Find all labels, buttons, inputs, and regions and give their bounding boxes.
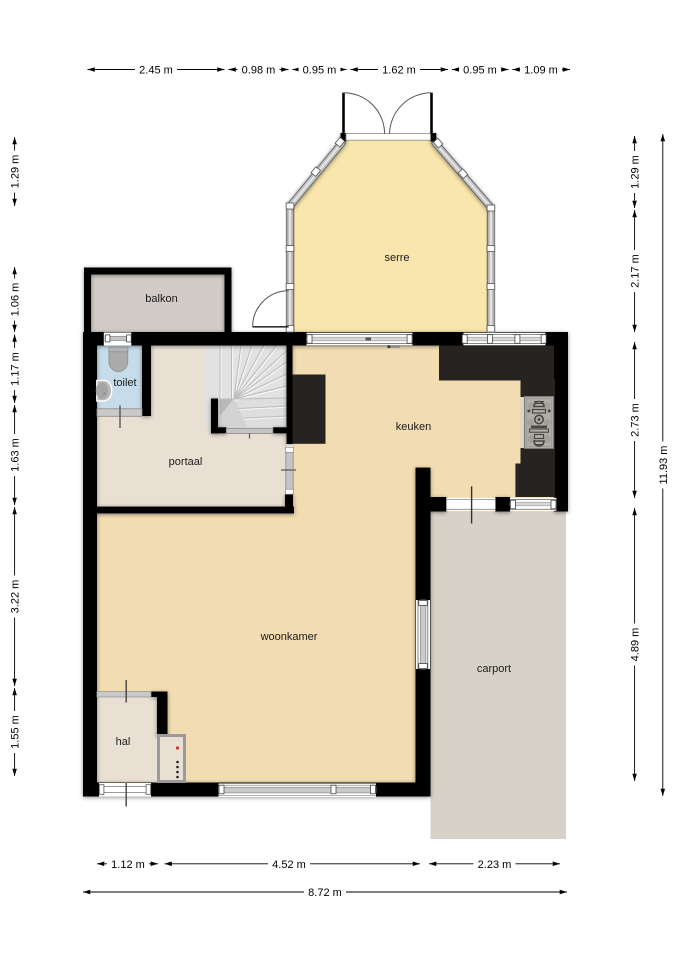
svg-text:11.93 m: 11.93 m (658, 446, 670, 485)
svg-text:hal: hal (116, 736, 131, 748)
svg-text:1.09 m: 1.09 m (524, 65, 558, 77)
svg-text:1.06 m: 1.06 m (10, 283, 22, 317)
svg-text:1.17 m: 1.17 m (10, 352, 22, 386)
svg-text:keuken: keuken (396, 421, 431, 433)
svg-text:toilet: toilet (113, 377, 136, 389)
svg-text:1.55 m: 1.55 m (10, 715, 22, 749)
svg-text:portaal: portaal (169, 456, 203, 468)
svg-text:3.22 m: 3.22 m (10, 580, 22, 614)
svg-text:0.98 m: 0.98 m (242, 65, 276, 77)
svg-text:1.12 m: 1.12 m (111, 859, 145, 871)
svg-text:4.52 m: 4.52 m (272, 859, 306, 871)
svg-text:2.45 m: 2.45 m (139, 65, 173, 77)
svg-text:serre: serre (384, 252, 409, 264)
svg-text:1.29 m: 1.29 m (630, 155, 642, 189)
svg-text:1.63 m: 1.63 m (10, 438, 22, 472)
svg-text:8.72 m: 8.72 m (308, 887, 342, 899)
svg-text:balkon: balkon (145, 293, 177, 305)
svg-text:1.29 m: 1.29 m (10, 155, 22, 189)
svg-text:carport: carport (477, 663, 511, 675)
svg-text:0.95 m: 0.95 m (303, 65, 337, 77)
svg-text:woonkamer: woonkamer (260, 631, 318, 643)
svg-text:2.17 m: 2.17 m (630, 254, 642, 288)
svg-text:2.73 m: 2.73 m (630, 403, 642, 437)
svg-text:4.89 m: 4.89 m (630, 628, 642, 662)
svg-text:0.95 m: 0.95 m (463, 65, 497, 77)
svg-text:1.62 m: 1.62 m (382, 65, 416, 77)
svg-text:2.23 m: 2.23 m (478, 859, 512, 871)
